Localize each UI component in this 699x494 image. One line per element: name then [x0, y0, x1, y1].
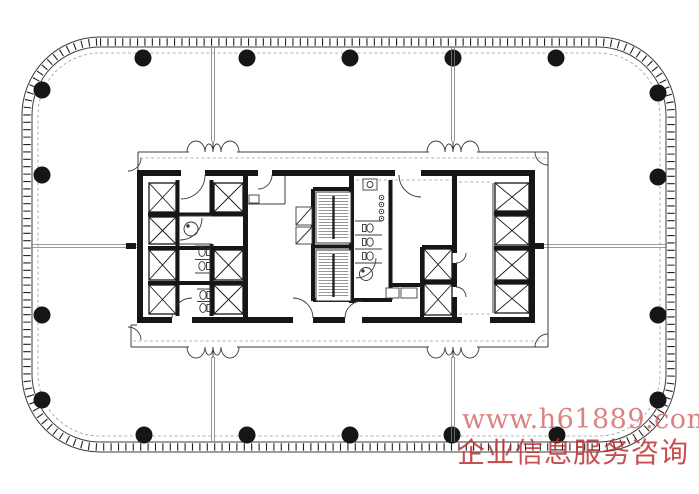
- accessible-wc-symbol-head: [186, 224, 189, 227]
- toilet-tank: [207, 263, 211, 270]
- toilet-fixture: [199, 262, 205, 271]
- stair-center-rail: [332, 254, 334, 297]
- toilet-fixture: [200, 304, 206, 313]
- floor-plan-drawing: [0, 0, 699, 494]
- urinal-drain: [381, 218, 382, 219]
- toilet-tank: [363, 225, 367, 232]
- equipment-box: [249, 195, 259, 203]
- elevator-shaft: [149, 285, 176, 314]
- stair-center-rail: [332, 196, 334, 239]
- elevator-shaft: [424, 284, 452, 315]
- structural-column: [549, 427, 566, 444]
- structural-column: [136, 427, 153, 444]
- janitor-closet: [363, 179, 377, 190]
- stair-flight: [316, 192, 351, 243]
- elevator-shaft: [214, 183, 243, 212]
- wall-tick: [533, 243, 544, 249]
- elevator-shaft: [424, 249, 452, 280]
- urinal-drain: [381, 197, 382, 198]
- toilet-fixture: [200, 291, 206, 300]
- elevator-shaft: [214, 285, 243, 314]
- elevator-shaft: [495, 284, 529, 313]
- stair-flight: [316, 250, 351, 301]
- structural-column: [342, 427, 359, 444]
- toilet-fixture: [367, 224, 373, 232]
- structural-column: [239, 50, 256, 67]
- structural-column: [650, 307, 667, 324]
- elevator-shaft: [214, 250, 243, 280]
- pantry-counter: [401, 288, 417, 298]
- structural-column: [650, 392, 667, 409]
- structural-column: [239, 427, 256, 444]
- elevator-shaft: [495, 216, 529, 245]
- accessible-wc-symbol: [184, 222, 198, 236]
- toilet-fixture: [367, 252, 373, 260]
- structural-column: [342, 50, 359, 67]
- elevator-shaft: [149, 250, 176, 280]
- accessible-wc-symbol: [360, 268, 373, 281]
- structural-column: [135, 50, 152, 67]
- structural-column: [34, 307, 51, 324]
- service-core: [126, 152, 548, 347]
- toilet-tank: [363, 239, 367, 246]
- toilet-tank: [363, 253, 367, 260]
- floor-plan-page: www.h61889.com 企业信息服务咨询: [0, 0, 699, 494]
- structural-column: [34, 82, 51, 99]
- elevator-shaft: [149, 217, 176, 244]
- structural-column: [650, 85, 667, 102]
- structural-column: [34, 167, 51, 184]
- pantry-counter: [386, 288, 399, 298]
- elevator-shaft: [495, 183, 529, 211]
- urinal-drain: [381, 211, 382, 212]
- structural-column: [548, 50, 565, 67]
- structural-column: [445, 50, 462, 67]
- structural-column: [34, 392, 51, 409]
- toilet-fixture: [367, 238, 373, 246]
- elevator-shaft: [149, 183, 176, 212]
- structural-column: [650, 169, 667, 186]
- elevator-shaft: [495, 250, 529, 280]
- urinal-drain: [381, 204, 382, 205]
- wall-tick: [126, 243, 136, 249]
- accessible-wc-symbol-head: [361, 269, 364, 272]
